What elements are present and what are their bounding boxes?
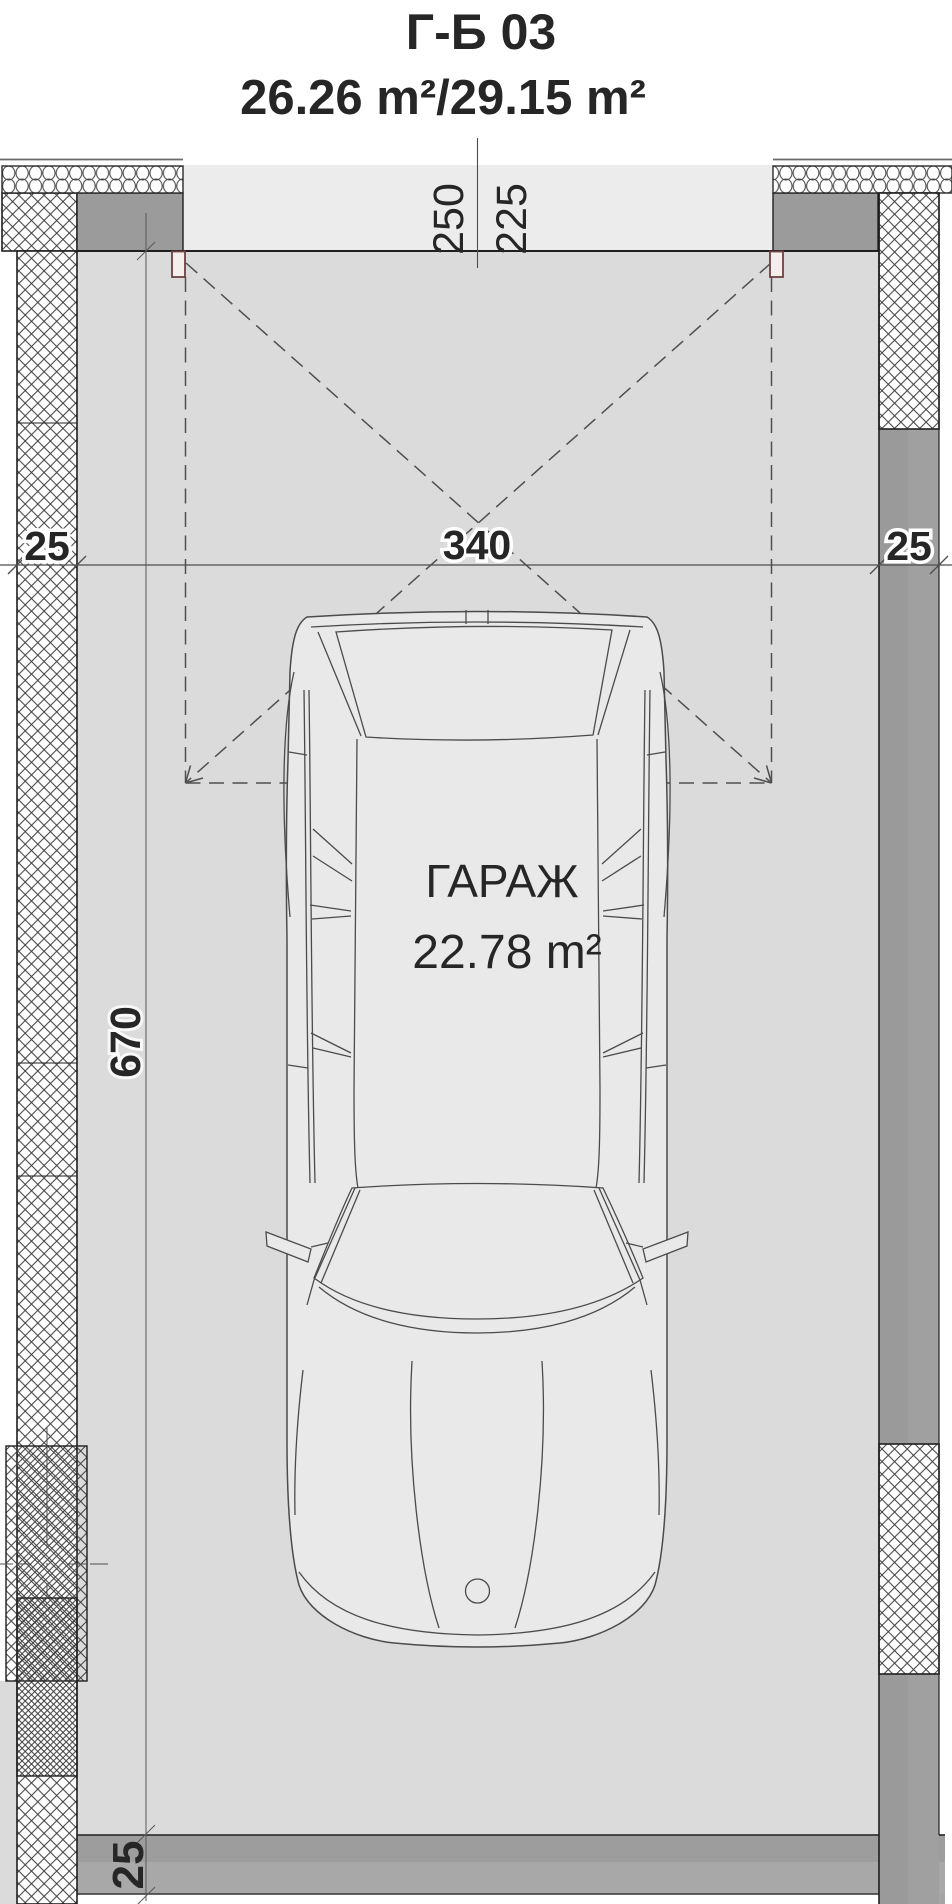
svg-text:22.78 m²: 22.78 m² (412, 926, 601, 979)
svg-text:340: 340 (443, 522, 511, 568)
svg-text:25: 25 (104, 1841, 153, 1890)
svg-text:670: 670 (102, 1006, 150, 1078)
svg-text:225: 225 (488, 183, 536, 255)
svg-text:250: 250 (425, 183, 473, 255)
svg-text:26.26 m²/29.15 m²: 26.26 m²/29.15 m² (240, 71, 646, 125)
svg-text:25: 25 (886, 523, 932, 569)
svg-text:25: 25 (24, 523, 70, 569)
svg-text:ГАРАЖ: ГАРАЖ (425, 855, 578, 907)
svg-text:Г-Б 03: Г-Б 03 (406, 4, 556, 60)
